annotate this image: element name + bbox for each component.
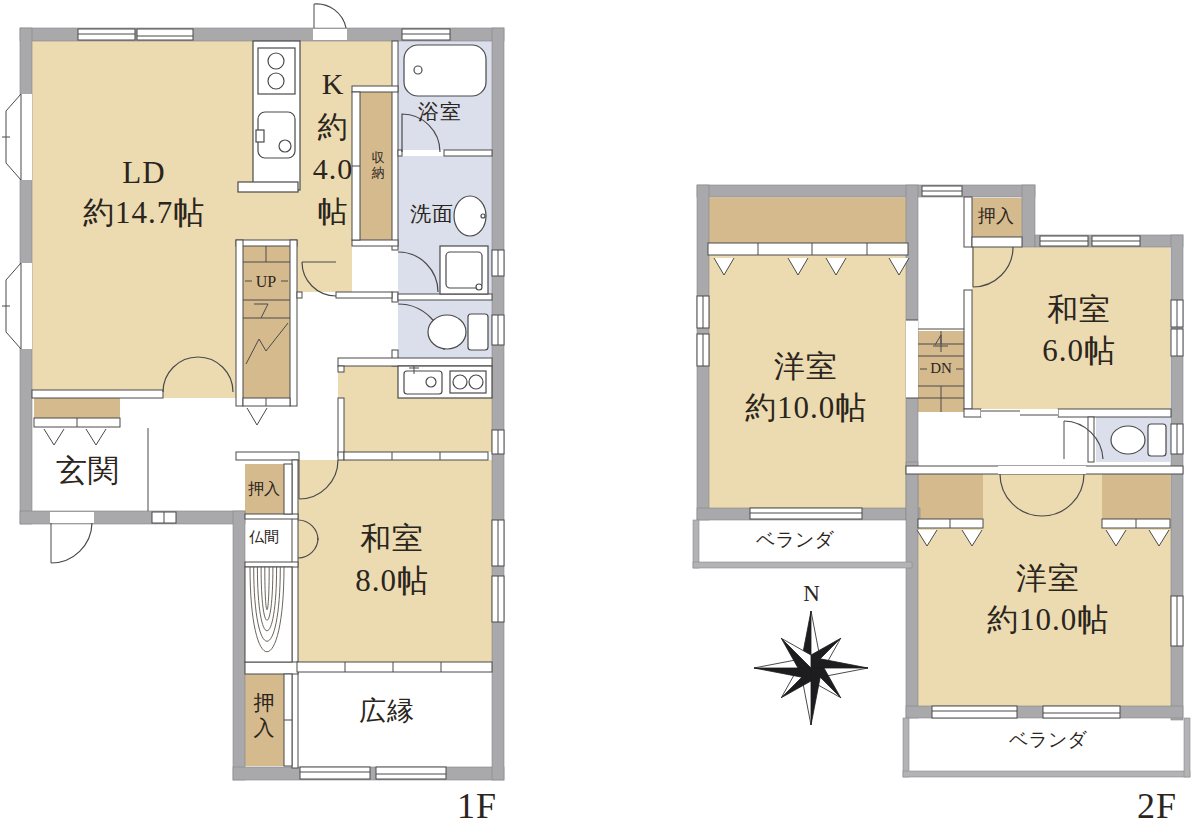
- room-label-western-se: 洋室 約10.0帖: [987, 559, 1109, 641]
- room-label-western-nw: 洋室 約10.0帖: [745, 347, 867, 429]
- room-label-kitchen: K 約 4.0 帖: [313, 63, 354, 233]
- toilet-2f-icon: [1111, 424, 1166, 456]
- floor1-title: 1F: [457, 783, 497, 830]
- compass-icon: [754, 611, 868, 725]
- floorplan-canvas: LD 約14.7帖 K 約 4.0 帖 浴室 収 納 洗面 UP 玄関 押入 仏…: [0, 0, 1200, 839]
- room-label-storage: 収 納: [372, 151, 385, 181]
- stairs-up-label: UP: [256, 272, 276, 293]
- kitchenette-icon: [398, 366, 492, 398]
- room-label-bathroom: 浴室: [418, 99, 462, 126]
- toilet-1f-icon: [428, 314, 488, 350]
- washing-machine-icon: [440, 246, 488, 294]
- room-label-butsuma: 仏間: [249, 528, 279, 548]
- floor2-title: 2F: [1137, 783, 1177, 830]
- room-label-oshiire-2f: 押入: [978, 205, 1014, 228]
- wash-basin-icon: [454, 196, 486, 236]
- room-label-living-dining: LD 約14.7帖: [83, 153, 205, 234]
- room-label-entrance: 玄関: [56, 451, 120, 491]
- tokonoma-icon: [245, 567, 292, 662]
- floor2-plan: [693, 185, 1190, 777]
- room-label-washitsu-1f: 和室 8.0帖: [355, 518, 429, 602]
- floorplan-drawing: [0, 0, 1200, 839]
- stairs-down-label: DN: [930, 359, 952, 379]
- bathtub-icon: [404, 45, 486, 96]
- room-label-washitsu-2f: 和室 6.0帖: [1042, 290, 1116, 372]
- room-label-closet-south: 押 入: [254, 691, 275, 741]
- balcony-south-label: ベランダ: [1009, 728, 1087, 753]
- room-label-hiroen: 広縁: [359, 694, 415, 729]
- floor1-closet-marks: [44, 429, 106, 445]
- room-label-closet-hall: 押入: [248, 479, 280, 500]
- balcony-west-label: ベランダ: [756, 528, 834, 553]
- compass-north-label: N: [803, 579, 821, 609]
- room-label-washroom: 洗面: [410, 201, 454, 228]
